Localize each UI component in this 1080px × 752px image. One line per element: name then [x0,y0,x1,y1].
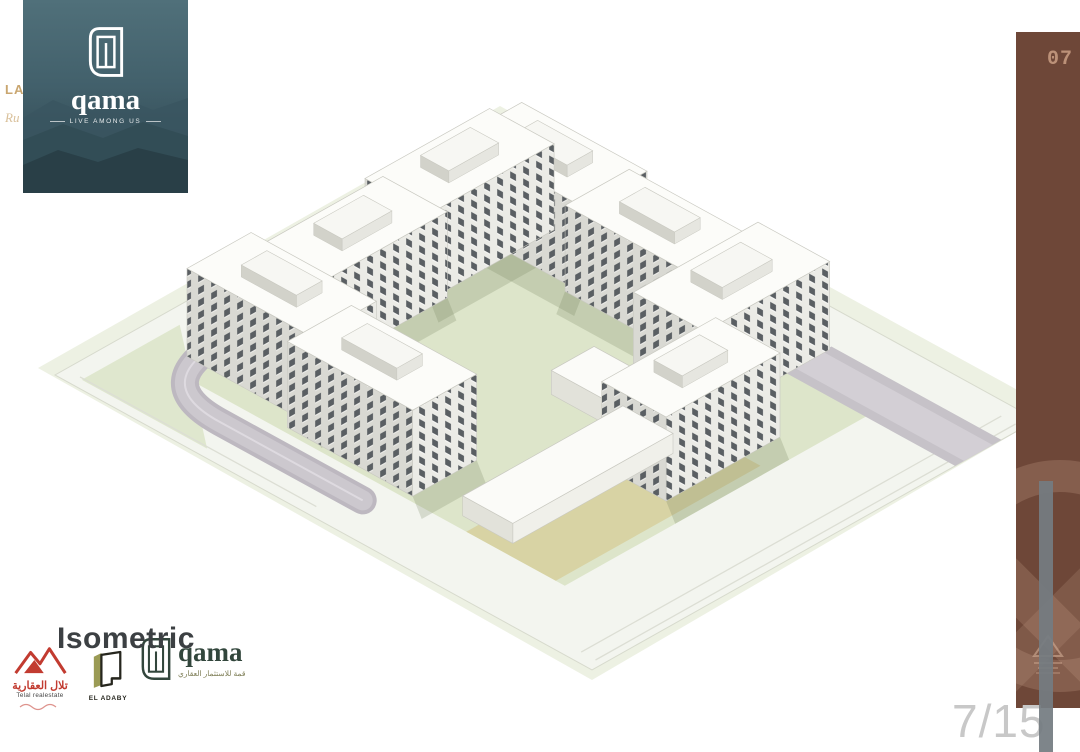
margin-fragment-2: Ru [5,110,19,126]
brand-card: qama LIVE AMONG US [23,0,188,193]
telal-name-english: Telal realestate [5,692,75,699]
slide-page: LA Ru qama L [0,0,1080,752]
tagline-rule-right [146,121,161,122]
slide-number-badge: 07 [1047,48,1073,71]
margin-fragment-1: LA [5,82,24,97]
tagline-rule-left [50,121,65,122]
qama-footer-subtitle: قمة للاستثمار العقاري [178,669,245,678]
qama-wordmark: qama [23,85,188,115]
telal-name-arabic: تلال العقارية [5,680,75,692]
qama-tagline: LIVE AMONG US [70,118,142,125]
scrollbar-thumb[interactable] [1039,481,1053,752]
eladaby-logo: EL ADABY [80,650,136,702]
telal-signature-icon [18,702,62,712]
qama-emblem-icon [87,26,125,78]
eladaby-name: EL ADABY [80,695,136,702]
page-title: Isometric [57,622,195,656]
